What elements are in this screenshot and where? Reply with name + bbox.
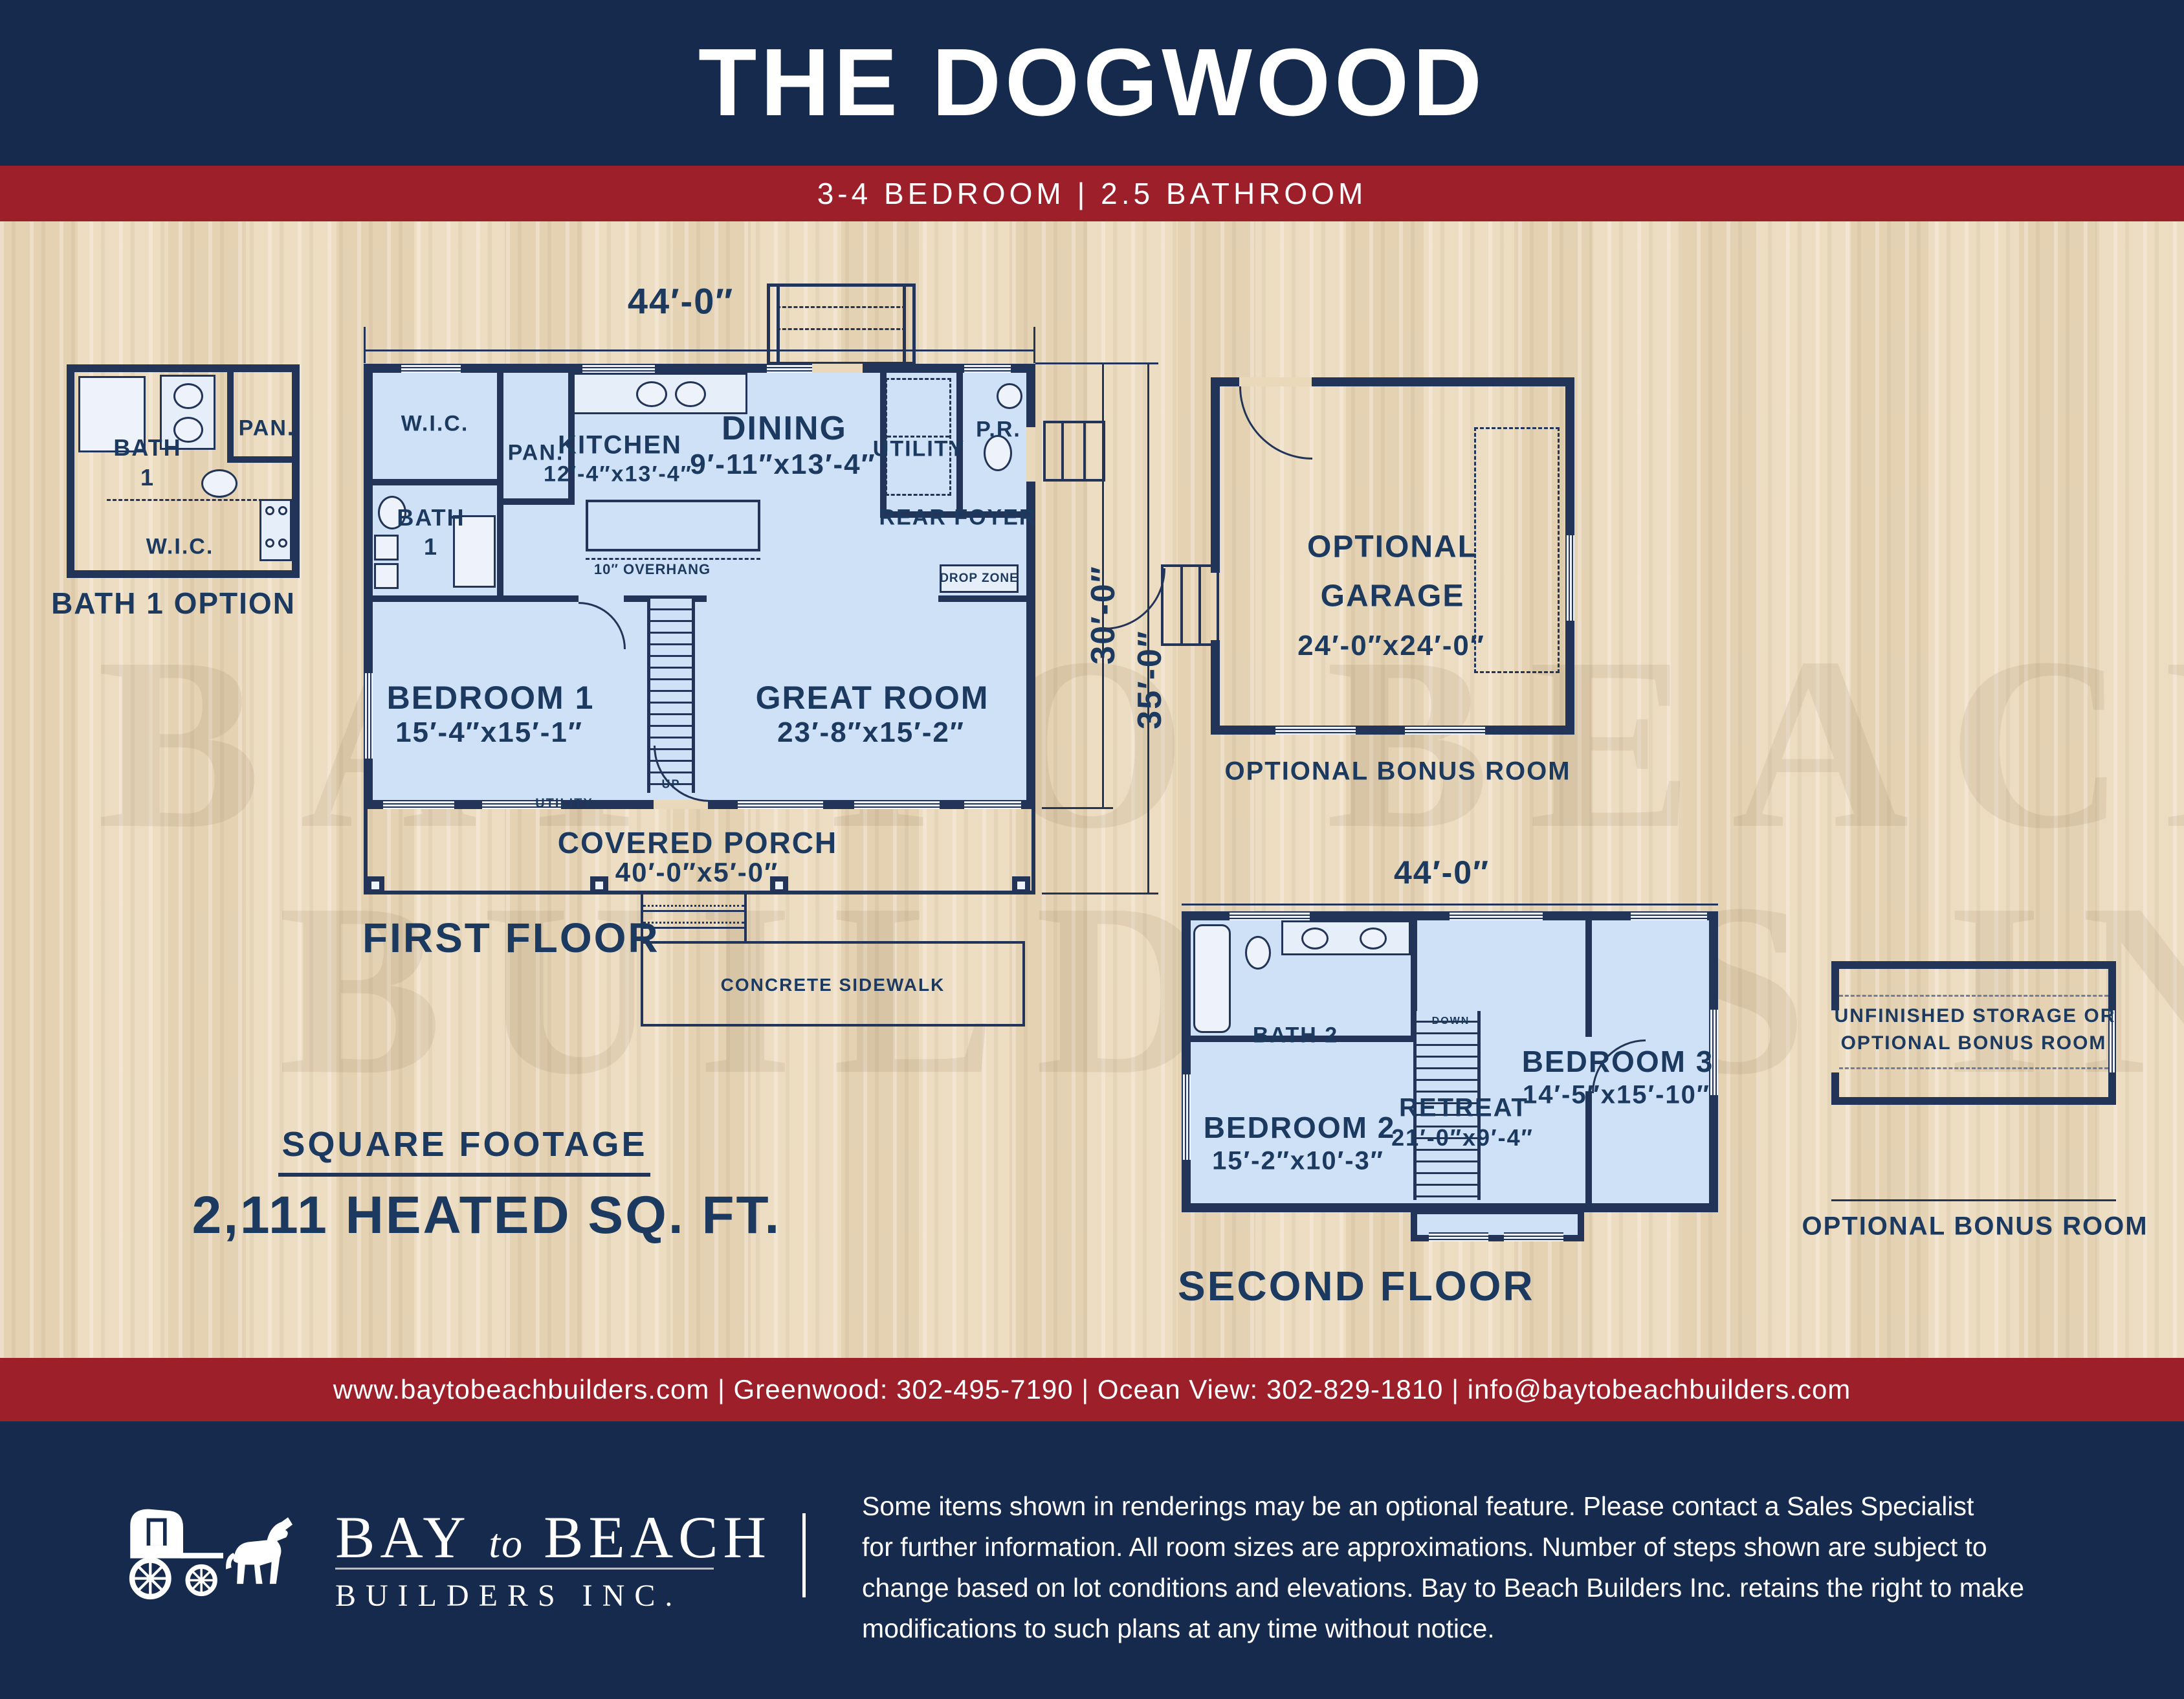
- window: [383, 800, 454, 809]
- window: [1565, 535, 1574, 621]
- window: [1631, 911, 1707, 920]
- room-label-bedroom2: BEDROOM 2: [1204, 1110, 1396, 1145]
- square-footage-title: SQUARE FOOTAGE: [281, 1124, 647, 1164]
- logo-to: to: [489, 1520, 524, 1566]
- garage-door-swing: [1239, 386, 1312, 460]
- room-label-bath2: BATH 2: [1253, 1023, 1338, 1049]
- ff-wall: [373, 479, 503, 485]
- garage-label-line2: GARAGE: [1321, 579, 1465, 614]
- ff-dim-line-top: [364, 350, 1035, 351]
- kneewall-line: [1839, 1067, 2108, 1069]
- window: [1230, 911, 1310, 920]
- bo-pan-label: PAN.: [239, 416, 295, 441]
- second-floor-title: SECOND FLOOR: [1178, 1262, 1535, 1310]
- room-dims-dining: 9′-11″x13′-4″: [690, 449, 876, 481]
- window: [1182, 1074, 1191, 1160]
- room-label-great-room: GREAT ROOM: [756, 679, 989, 716]
- bath2-sink: [1301, 927, 1329, 949]
- utility-small-label: UTILITY: [535, 797, 593, 812]
- front-door-swing: [654, 746, 710, 802]
- square-footage-underline: [278, 1173, 650, 1177]
- room-dims-great-room: 23′-8″x15′-2″: [777, 716, 965, 749]
- garage-label-line1: OPTIONAL: [1307, 529, 1478, 565]
- subtitle-text: 3-4 BEDROOM | 2.5 BATHROOM: [817, 176, 1367, 211]
- bo-bath-label: BATH: [113, 434, 181, 461]
- room-label-bedroom3: BEDROOM 3: [1522, 1044, 1714, 1079]
- storage-bonus-label: OPTIONAL BONUS ROOM: [1802, 1212, 2148, 1241]
- room-label-bedroom1: BEDROOM 1: [387, 679, 595, 716]
- logo-rule: [335, 1568, 714, 1570]
- room-label-bath1: BATH: [397, 504, 465, 531]
- room-label-rear-foyer: REAR FOYER: [879, 505, 1037, 531]
- window: [964, 800, 1021, 809]
- window: [364, 673, 373, 759]
- ff-dim-ext-right: [1033, 327, 1035, 363]
- window: [1504, 1232, 1563, 1241]
- kitchen-sink: [636, 381, 667, 407]
- stairs-down-label: DOWN: [1432, 1016, 1470, 1027]
- garage-bonus-label: OPTIONAL BONUS ROOM: [1224, 757, 1571, 786]
- disclaimer-text: Some items shown in renderings may be an…: [862, 1486, 2150, 1649]
- bath-option-title: BATH 1 OPTION: [51, 586, 296, 621]
- rear-door-opening: [812, 364, 863, 373]
- logo-brand-line2: BUILDERS INC.: [335, 1578, 682, 1614]
- bath2-tub: [1193, 924, 1231, 1033]
- ff-rear-deck: [767, 283, 916, 365]
- room-dims-kitchen: 12′-4″x13′-4″: [544, 462, 692, 487]
- contact-bar: www.baytobeachbuilders.com | Greenwood: …: [0, 1358, 2184, 1421]
- contact-text: www.baytobeachbuilders.com | Greenwood: …: [333, 1374, 1851, 1405]
- disclaimer-line: for further information. All room sizes …: [862, 1527, 2150, 1568]
- bo-toilet: [201, 469, 237, 498]
- kitchen-sink: [675, 381, 706, 407]
- room-label-dining: DINING: [722, 409, 847, 448]
- window: [1450, 911, 1543, 920]
- bath2-vanity: [1281, 920, 1411, 955]
- bo-sink: [173, 383, 203, 409]
- garage-attic-stairs: [1474, 427, 1560, 673]
- step-line: [643, 905, 744, 907]
- window: [1275, 726, 1356, 735]
- pr-sink: [997, 383, 1022, 409]
- ff-dim-line-35: [1147, 364, 1149, 894]
- front-door-opening: [654, 800, 708, 809]
- disclaimer-line: change based on lot conditions and eleva…: [862, 1568, 2150, 1608]
- room-label-utility: UTILITY: [873, 437, 965, 462]
- disclaimer-line: modifications to such plans at any time …: [862, 1608, 2150, 1649]
- room-dims-bedroom1: 15′-4″x15′-1″: [395, 716, 583, 749]
- room-label-pr: P.R.: [976, 417, 1021, 443]
- bo-bath-num: 1: [140, 464, 155, 491]
- room-dims-retreat: 21′-0″x9′-4″: [1391, 1124, 1534, 1151]
- deck-post-rail: [903, 287, 906, 362]
- island-overhang-line: [586, 558, 760, 560]
- window: [1405, 726, 1485, 735]
- burner: [265, 539, 274, 548]
- sf-wall: [1585, 920, 1592, 1037]
- storage-label-line2: OPTIONAL BONUS ROOM: [1841, 1032, 2107, 1054]
- window: [854, 800, 940, 809]
- deck-rail-line: [777, 328, 906, 330]
- storage-ground-line: [1831, 1199, 2116, 1201]
- ff-dim-ext: [1042, 893, 1158, 894]
- burner: [265, 506, 274, 515]
- room-dims-bedroom2: 15′-2″x10′-3″: [1212, 1147, 1384, 1176]
- stoop-rail: [1198, 567, 1201, 643]
- brochure-page: BAY TO BEACH BUILDERS INC. THE DOGWOOD 3…: [0, 0, 2184, 1699]
- porch-side-wall: [1031, 809, 1035, 893]
- bath2-sink: [1360, 927, 1387, 949]
- room-label-kitchen: KITCHEN: [558, 431, 682, 460]
- logo-beach: BEACH: [544, 1504, 771, 1570]
- sidewalk-label: CONCRETE SIDEWALK: [721, 975, 945, 995]
- window: [582, 364, 655, 373]
- side-door-opening: [1026, 427, 1035, 482]
- kitchen-counter: [573, 373, 747, 414]
- step-line: [643, 910, 744, 912]
- ff-wall: [373, 595, 579, 602]
- logo-brand-line1: BAY to BEACH: [335, 1503, 771, 1571]
- ff-wall: [497, 373, 503, 479]
- window: [738, 800, 823, 809]
- ff-dim-ext: [1035, 362, 1158, 364]
- page-title: THE DOGWOOD: [698, 28, 1486, 138]
- deck-post-rail: [777, 287, 780, 362]
- storage-label-line1: UNFINISHED STORAGE OR: [1835, 1005, 2116, 1027]
- square-footage-value: 2,111 HEATED SQ. FT.: [192, 1185, 782, 1246]
- bo-wall: [227, 372, 234, 463]
- porch-label: COVERED PORCH: [558, 825, 837, 860]
- room-label-bath1-num: 1: [424, 533, 438, 561]
- bath2-toilet: [1245, 936, 1271, 970]
- room-dims-bedroom3: 14′-5″x15′-10″: [1523, 1081, 1710, 1110]
- logo-bay: BAY: [335, 1504, 469, 1570]
- room-label-drop-zone: DROP ZONE: [940, 572, 1019, 586]
- stoop-rail: [1180, 567, 1183, 643]
- garage-door-opening: [1239, 377, 1312, 386]
- garage-stoop: [1161, 564, 1219, 646]
- sf-dim-line: [1182, 904, 1718, 905]
- stoop-rail: [1061, 423, 1064, 479]
- bo-wic-label: W.I.C.: [146, 535, 214, 560]
- room-label-retreat: RETREAT: [1399, 1094, 1528, 1123]
- ff-dim-width-label: 44′-0″: [628, 280, 734, 322]
- bo-wall: [227, 456, 292, 463]
- ff-wall: [497, 498, 575, 505]
- sf-stair-bay: [1411, 1208, 1584, 1241]
- horse-carriage-logo-icon: [123, 1499, 324, 1601]
- garage-dims: 24′-0″x24′-0″: [1297, 630, 1485, 662]
- stoop-rail: [1083, 423, 1086, 479]
- ff-wall: [938, 595, 1026, 602]
- bo-range: [259, 499, 292, 561]
- room-label-wic: W.I.C.: [401, 412, 469, 437]
- side-stoop: [1043, 421, 1105, 482]
- deck-rail-line: [777, 306, 906, 308]
- subtitle-bar: 3-4 BEDROOM | 2.5 BATHROOM: [0, 166, 2184, 221]
- island-overhang-label: 10″ OVERHANG: [594, 561, 711, 578]
- sf-dim-width-label: 44′-0″: [1394, 854, 1490, 891]
- first-floor-title: FIRST FLOOR: [362, 914, 660, 962]
- porch-post: [1012, 876, 1030, 894]
- porch-post: [590, 876, 608, 894]
- kitchen-island: [586, 500, 760, 551]
- burner: [278, 506, 287, 515]
- bath1-vanity: [374, 535, 399, 561]
- bo-closet-rod: [107, 499, 269, 501]
- footer-divider: [802, 1513, 806, 1597]
- header: THE DOGWOOD: [0, 0, 2184, 166]
- bedroom1-door-swing: [579, 602, 626, 649]
- ff-dim-ext-left: [364, 327, 366, 363]
- window: [401, 364, 461, 373]
- bath1-vanity: [374, 563, 399, 589]
- porch-post: [366, 876, 384, 894]
- window: [1429, 1232, 1488, 1241]
- burner: [278, 539, 287, 548]
- disclaimer-line: Some items shown in renderings may be an…: [862, 1486, 2150, 1527]
- kneewall-line: [1839, 995, 2108, 997]
- window: [964, 364, 1011, 373]
- porch-dims: 40′-0″x5′-0″: [615, 857, 779, 888]
- stairs-up-label: UP: [661, 778, 680, 792]
